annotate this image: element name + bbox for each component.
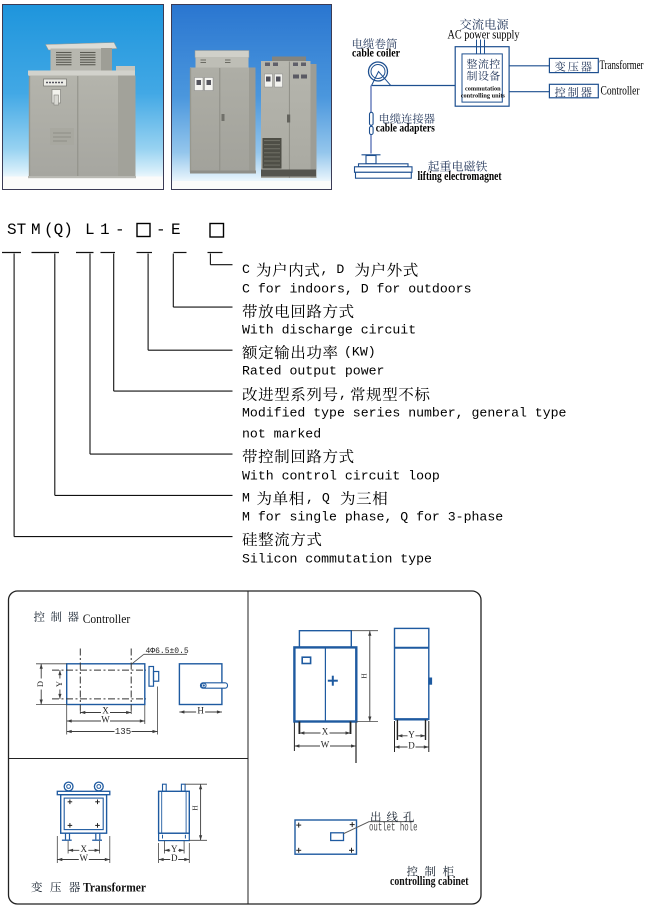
svg-text:W: W bbox=[101, 715, 110, 725]
svg-text:Controller: Controller bbox=[83, 612, 131, 626]
svg-text:Transformer: Transformer bbox=[83, 880, 146, 894]
svg-text:W: W bbox=[80, 853, 89, 863]
svg-text:cable adapters: cable adapters bbox=[376, 121, 435, 135]
svg-text:M for single phase, Q for 3-ph: M for single phase, Q for 3-phase bbox=[242, 510, 503, 525]
svg-text:M: M bbox=[31, 221, 41, 239]
svg-text:With control circuit loop: With control circuit loop bbox=[242, 469, 440, 484]
svg-text:cable coiler: cable coiler bbox=[352, 45, 401, 59]
svg-text:L: L bbox=[85, 221, 95, 239]
svg-text:(Q): (Q) bbox=[44, 221, 73, 239]
svg-text:,: , bbox=[339, 386, 347, 401]
svg-text:C for indoors, D for outdoors: C for indoors, D for outdoors bbox=[242, 282, 472, 297]
svg-text:Rated output power: Rated output power bbox=[242, 364, 384, 379]
svg-text:Y: Y bbox=[54, 681, 64, 687]
svg-text:H: H bbox=[361, 673, 369, 678]
svg-text:Transformer: Transformer bbox=[600, 58, 644, 72]
svg-text:1: 1 bbox=[100, 221, 110, 239]
svg-text:135: 135 bbox=[115, 727, 131, 737]
svg-text:D: D bbox=[408, 741, 415, 751]
svg-text:-: - bbox=[115, 221, 125, 239]
svg-text:E: E bbox=[171, 221, 181, 239]
svg-text:W: W bbox=[321, 740, 330, 750]
svg-text:C: C bbox=[242, 262, 250, 277]
svg-text:Modified type series number, g: Modified type series number, general typ… bbox=[242, 406, 567, 421]
svg-text:(KW): (KW) bbox=[344, 344, 376, 359]
svg-text:With discharge circuit: With discharge circuit bbox=[242, 323, 416, 338]
svg-text:D: D bbox=[35, 681, 45, 687]
svg-text:ST: ST bbox=[7, 221, 26, 239]
svg-text:lifting electromagnet: lifting electromagnet bbox=[418, 169, 503, 183]
svg-text:, Q: , Q bbox=[306, 490, 330, 505]
svg-text:AC power supply: AC power supply bbox=[448, 28, 521, 42]
svg-text:Silicon commutation type: Silicon commutation type bbox=[242, 552, 432, 567]
svg-text:H: H bbox=[192, 805, 200, 810]
svg-text:X: X bbox=[322, 727, 329, 737]
svg-text:H: H bbox=[197, 706, 204, 716]
svg-text:Y: Y bbox=[408, 729, 415, 739]
svg-text:M: M bbox=[242, 490, 250, 505]
svg-text:controlling cabinet: controlling cabinet bbox=[390, 874, 469, 888]
svg-text:D: D bbox=[171, 853, 178, 863]
svg-text:Controller: Controller bbox=[601, 84, 640, 98]
svg-text:-: - bbox=[156, 221, 166, 239]
svg-text:, D: , D bbox=[321, 262, 345, 277]
svg-text:controlling units: controlling units bbox=[461, 93, 506, 100]
svg-text:outlet hole: outlet hole bbox=[369, 821, 418, 834]
svg-text:not marked: not marked bbox=[242, 427, 321, 442]
